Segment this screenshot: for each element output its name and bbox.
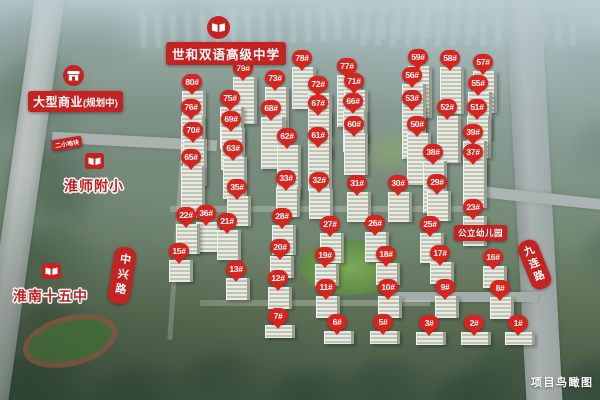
building-number-pin: 60# (344, 116, 364, 132)
building-number-pin: 58# (440, 50, 460, 66)
book-icon (206, 15, 231, 40)
building-number-pin: 15# (169, 243, 189, 259)
building-number-pin: 6# (327, 314, 347, 330)
building-number-pin: 12# (268, 270, 288, 286)
book-icon (42, 263, 61, 279)
building-number-pin: 18# (376, 246, 396, 262)
building-number-pin: 31# (347, 175, 367, 191)
building-number-pin: 75# (220, 90, 240, 106)
building-number-pin: 56# (402, 67, 422, 83)
aerial-site-map: 59#78#58#57#77#79#56#73#71#80#55#72#75#5… (0, 0, 600, 400)
building-number-pin: 66# (343, 93, 363, 109)
building-number-pin: 19# (315, 247, 335, 263)
building-number-pin: 28# (272, 208, 292, 224)
building-number-pin: 27# (320, 216, 340, 232)
building-number-pin: 23# (463, 199, 483, 215)
commercial-label: 大型商业(规划中) (28, 91, 123, 112)
building-number-pin: 36# (196, 205, 216, 221)
kindergarten-label: 公立幼儿园 (454, 225, 507, 241)
building-number-pin: 70# (183, 122, 203, 138)
mall-icon (62, 64, 85, 87)
commercial-label-main: 大型商业 (33, 95, 83, 109)
building-number-pin: 39# (463, 124, 483, 140)
building-number-pin: 51# (467, 99, 487, 115)
building-number-pin: 32# (309, 172, 329, 188)
building-number-pin: 16# (483, 249, 503, 265)
building-number-pin: 3# (419, 315, 439, 331)
building-number-pin: 68# (261, 100, 281, 116)
building-number-pin: 80# (182, 74, 202, 90)
building-number-pin: 50# (407, 116, 427, 132)
building-number-pin: 37# (463, 144, 483, 160)
building-number-pin: 61# (308, 127, 328, 143)
building-number-pin: 59# (408, 49, 428, 65)
building-number-pin: 1# (508, 315, 528, 331)
primary-school-label: 淮师附小 (64, 176, 124, 196)
building-number-pin: 52# (437, 99, 457, 115)
building-number-pin: 29# (427, 174, 447, 190)
building-number-pin: 71# (344, 73, 364, 89)
building-number-pin: 7# (268, 308, 288, 324)
building-number-pin: 38# (423, 144, 443, 160)
building-number-pin: 20# (270, 239, 290, 255)
building-number-pin: 13# (226, 261, 246, 277)
building-number-pin: 9# (435, 279, 455, 295)
building-number-pin: 21# (217, 213, 237, 229)
building-number-pin: 33# (276, 170, 296, 186)
building-number-pin: 10# (378, 279, 398, 295)
building-number-pin: 72# (308, 76, 328, 92)
building-number-pin: 65# (181, 149, 201, 165)
building-block (344, 133, 368, 175)
building-number-pin: 11# (316, 279, 336, 295)
building-number-pin: 78# (292, 50, 312, 66)
building-number-pin: 63# (223, 140, 243, 156)
book-icon (85, 153, 104, 169)
building-number-pin: 26# (365, 215, 385, 231)
building-number-pin: 67# (308, 95, 328, 111)
building-block (388, 192, 412, 222)
building-number-pin: 25# (420, 216, 440, 232)
markers-layer: 59#78#58#57#77#79#56#73#71#80#55#72#75#5… (0, 0, 600, 400)
building-number-pin: 53# (402, 90, 422, 106)
building-number-pin: 73# (265, 70, 285, 86)
building-number-pin: 62# (277, 128, 297, 144)
building-number-pin: 22# (176, 207, 196, 223)
building-number-pin: 17# (430, 245, 450, 261)
building-number-pin: 35# (227, 179, 247, 195)
building-number-pin: 8# (490, 280, 510, 296)
high-school-label: 世和双语高级中学 (166, 42, 286, 65)
watermark-text: 项目鸟瞰图 (531, 374, 594, 390)
middle-school-label: 淮南十五中 (13, 286, 88, 306)
building-number-pin: 30# (388, 175, 408, 191)
building-number-pin: 55# (468, 75, 488, 91)
building-number-pin: 69# (221, 111, 241, 127)
building-block (309, 189, 333, 219)
building-block (217, 230, 241, 260)
commercial-label-note: (规划中) (83, 98, 118, 109)
building-number-pin: 5# (373, 314, 393, 330)
building-number-pin: 2# (464, 315, 484, 331)
building-number-pin: 77# (337, 58, 357, 74)
building-number-pin: 76# (181, 99, 201, 115)
building-number-pin: 57# (473, 54, 493, 70)
